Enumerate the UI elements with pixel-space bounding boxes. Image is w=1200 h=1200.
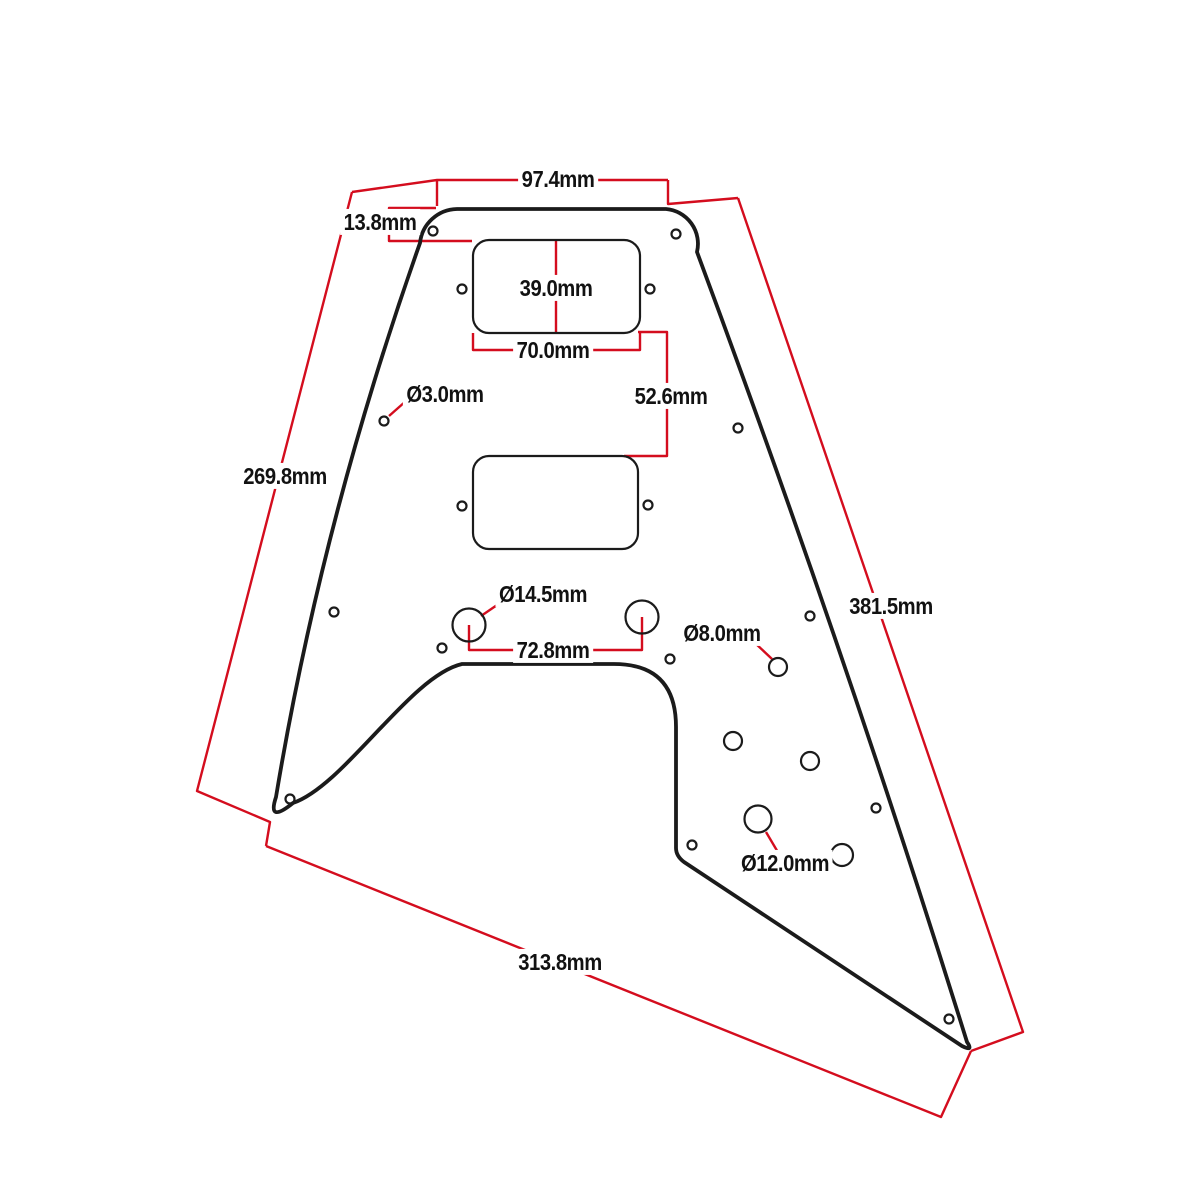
medium-hole: [801, 752, 819, 770]
dim-label-pot-hole-diameter: Ø14.5mm: [495, 581, 590, 607]
dim-label-pickup-width: 70.0mm: [513, 337, 593, 363]
dim-label-pickup-gap: 52.6mm: [631, 383, 711, 409]
pickguard-dimension-drawing: 97.4mm 13.8mm 39.0mm 70.0mm Ø3.0mm 52.6m…: [0, 0, 1200, 1200]
screw-hole: [872, 804, 881, 813]
dim-label-left-edge: 269.8mm: [240, 463, 331, 489]
medium-hole: [724, 732, 742, 750]
dim-label-pickup-height: 39.0mm: [516, 275, 596, 301]
dim-label-right-edge: 381.5mm: [846, 593, 937, 619]
large-hole: [831, 844, 853, 866]
dim-label-bottom-edge: 313.8mm: [515, 949, 606, 975]
dim-label-toggle-hole-diameter: Ø12.0mm: [737, 850, 832, 876]
dim-label-screw-hole-diameter: Ø3.0mm: [403, 381, 487, 407]
dim-label-jack-hole-diameter: Ø8.0mm: [680, 620, 764, 646]
screw-hole: [458, 502, 467, 511]
screw-hole: [429, 227, 438, 236]
screw-hole: [666, 655, 675, 664]
screw-hole: [380, 417, 389, 426]
toggle-hole: [745, 806, 772, 833]
screw-hole: [438, 644, 447, 653]
screw-hole: [644, 501, 653, 510]
screw-hole: [734, 424, 743, 433]
pickguard-outline: [274, 209, 970, 1048]
screw-hole: [672, 230, 681, 239]
drawing-svg: [0, 0, 1200, 1200]
screw-hole: [458, 285, 467, 294]
screw-hole: [945, 1015, 954, 1024]
screw-hole: [286, 795, 295, 804]
screw-hole: [806, 612, 815, 621]
dim-left-edge-line: [197, 192, 352, 846]
dim-label-pot-spacing: 72.8mm: [513, 637, 593, 663]
dimension-lines: [197, 180, 1023, 1117]
screw-hole: [688, 841, 697, 850]
screw-hole: [646, 285, 655, 294]
dim-right-edge-line: [738, 198, 1023, 1051]
dim-label-top-width: 97.4mm: [518, 166, 598, 192]
jack-hole: [769, 658, 787, 676]
bridge-pickup-cutout: [473, 456, 638, 549]
dim-label-top-offset: 13.8mm: [340, 209, 420, 235]
screw-hole: [330, 608, 339, 617]
